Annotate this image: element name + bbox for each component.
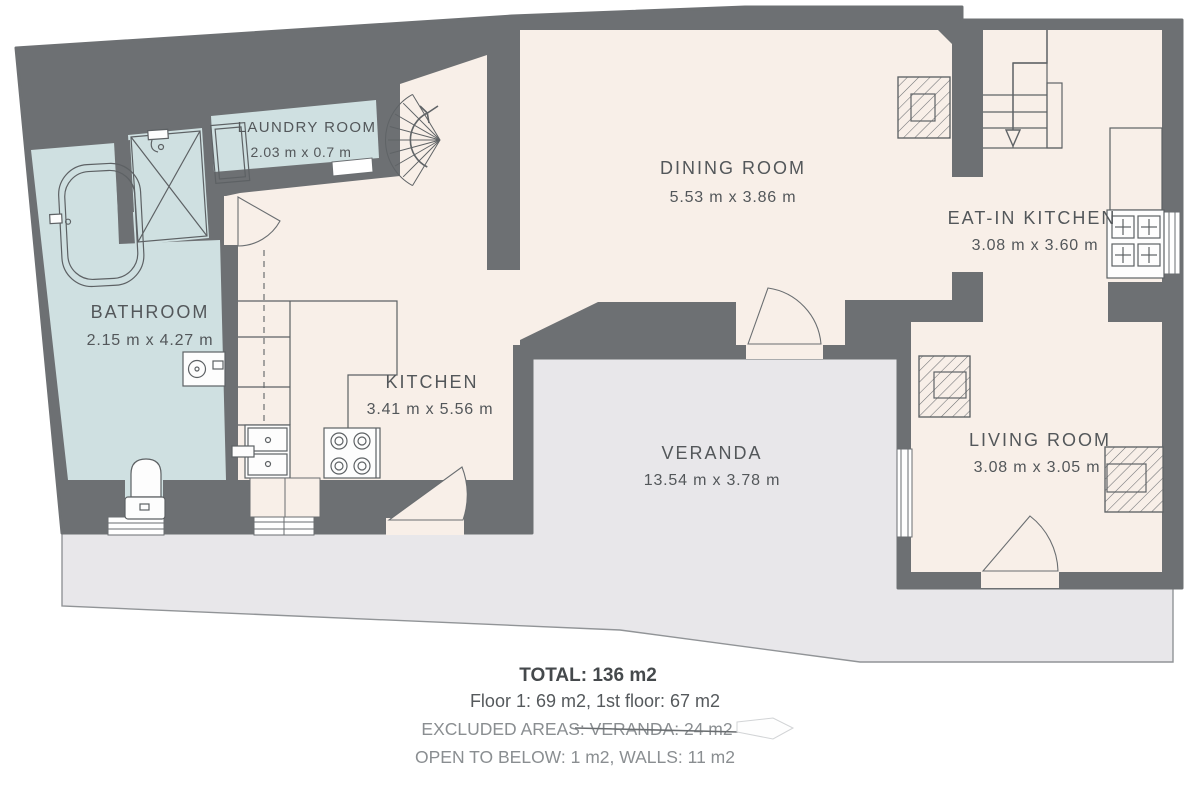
laundry-label: LAUNDRY ROOM xyxy=(238,119,377,136)
laundry-dims: 2.03 m x 0.7 m xyxy=(251,144,352,160)
window-eatin-east xyxy=(1164,212,1180,274)
chimney-living-left xyxy=(919,356,970,417)
excluded-arrow-annotation xyxy=(737,718,793,739)
living-label: LIVING ROOM xyxy=(969,430,1111,450)
kitchen-stove-icon xyxy=(324,428,380,478)
veranda-dims: 13.54 m x 3.78 m xyxy=(644,472,780,489)
bathroom-sink-icon xyxy=(183,352,225,386)
summary-excluded-prefix: EXCLUDED AREAS: xyxy=(421,719,589,739)
kitchen-label: KITCHEN xyxy=(385,372,478,392)
kitchen-dims: 3.41 m x 5.56 m xyxy=(367,401,494,418)
chimney-dining xyxy=(898,77,950,138)
kitchen-bay-cabinet xyxy=(250,478,320,517)
summary-block: TOTAL: 136 m2 Floor 1: 69 m2, 1st floor:… xyxy=(415,665,793,767)
dining-dims: 5.53 m x 3.86 m xyxy=(670,189,797,206)
summary-excluded: EXCLUDED AREAS: VERANDA: 24 m2 xyxy=(421,719,732,739)
floorplan-page: LAUNDRY ROOM 2.03 m x 0.7 m BATHROOM 2.1… xyxy=(0,0,1200,800)
veranda-label: VERANDA xyxy=(661,443,762,463)
floor-plan-svg: LAUNDRY ROOM 2.03 m x 0.7 m BATHROOM 2.1… xyxy=(0,0,1200,800)
eatin-dims: 3.08 m x 3.60 m xyxy=(972,237,1099,254)
window-bathroom-south xyxy=(108,517,164,535)
living-dims: 3.08 m x 3.05 m xyxy=(974,459,1101,476)
chimney-living-right xyxy=(1105,447,1163,512)
summary-total: TOTAL: 136 m2 xyxy=(519,665,657,686)
summary-open-walls: OPEN TO BELOW: 1 m2, WALLS: 11 m2 xyxy=(415,747,735,767)
bathroom-label: BATHROOM xyxy=(91,302,210,322)
eatin-label: EAT-IN KITCHEN xyxy=(948,208,1117,228)
window-kitchen-south xyxy=(254,516,314,535)
window-living-west xyxy=(897,449,912,537)
summary-floors: Floor 1: 69 m2, 1st floor: 67 m2 xyxy=(470,691,720,711)
dining-label: DINING ROOM xyxy=(660,158,806,178)
bathroom-dims: 2.15 m x 4.27 m xyxy=(87,332,214,349)
